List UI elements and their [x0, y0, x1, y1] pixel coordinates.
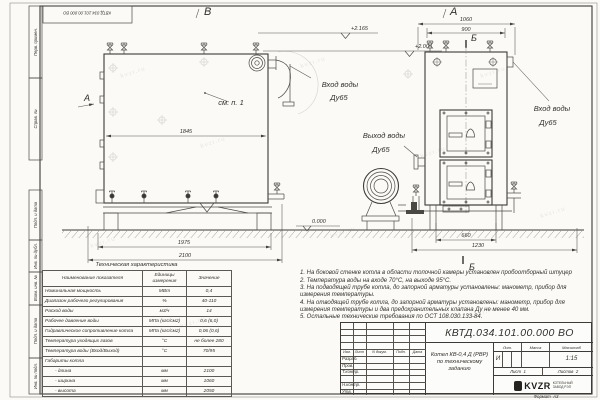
drawing-sheet: КВТД.034.101.00.000 ВО Перв. примен. Спр… — [0, 0, 600, 400]
watermark-layer: kvzr.ru kvzr.ru kvzr.ru kvzr.ru kvzr.ru … — [0, 0, 600, 400]
